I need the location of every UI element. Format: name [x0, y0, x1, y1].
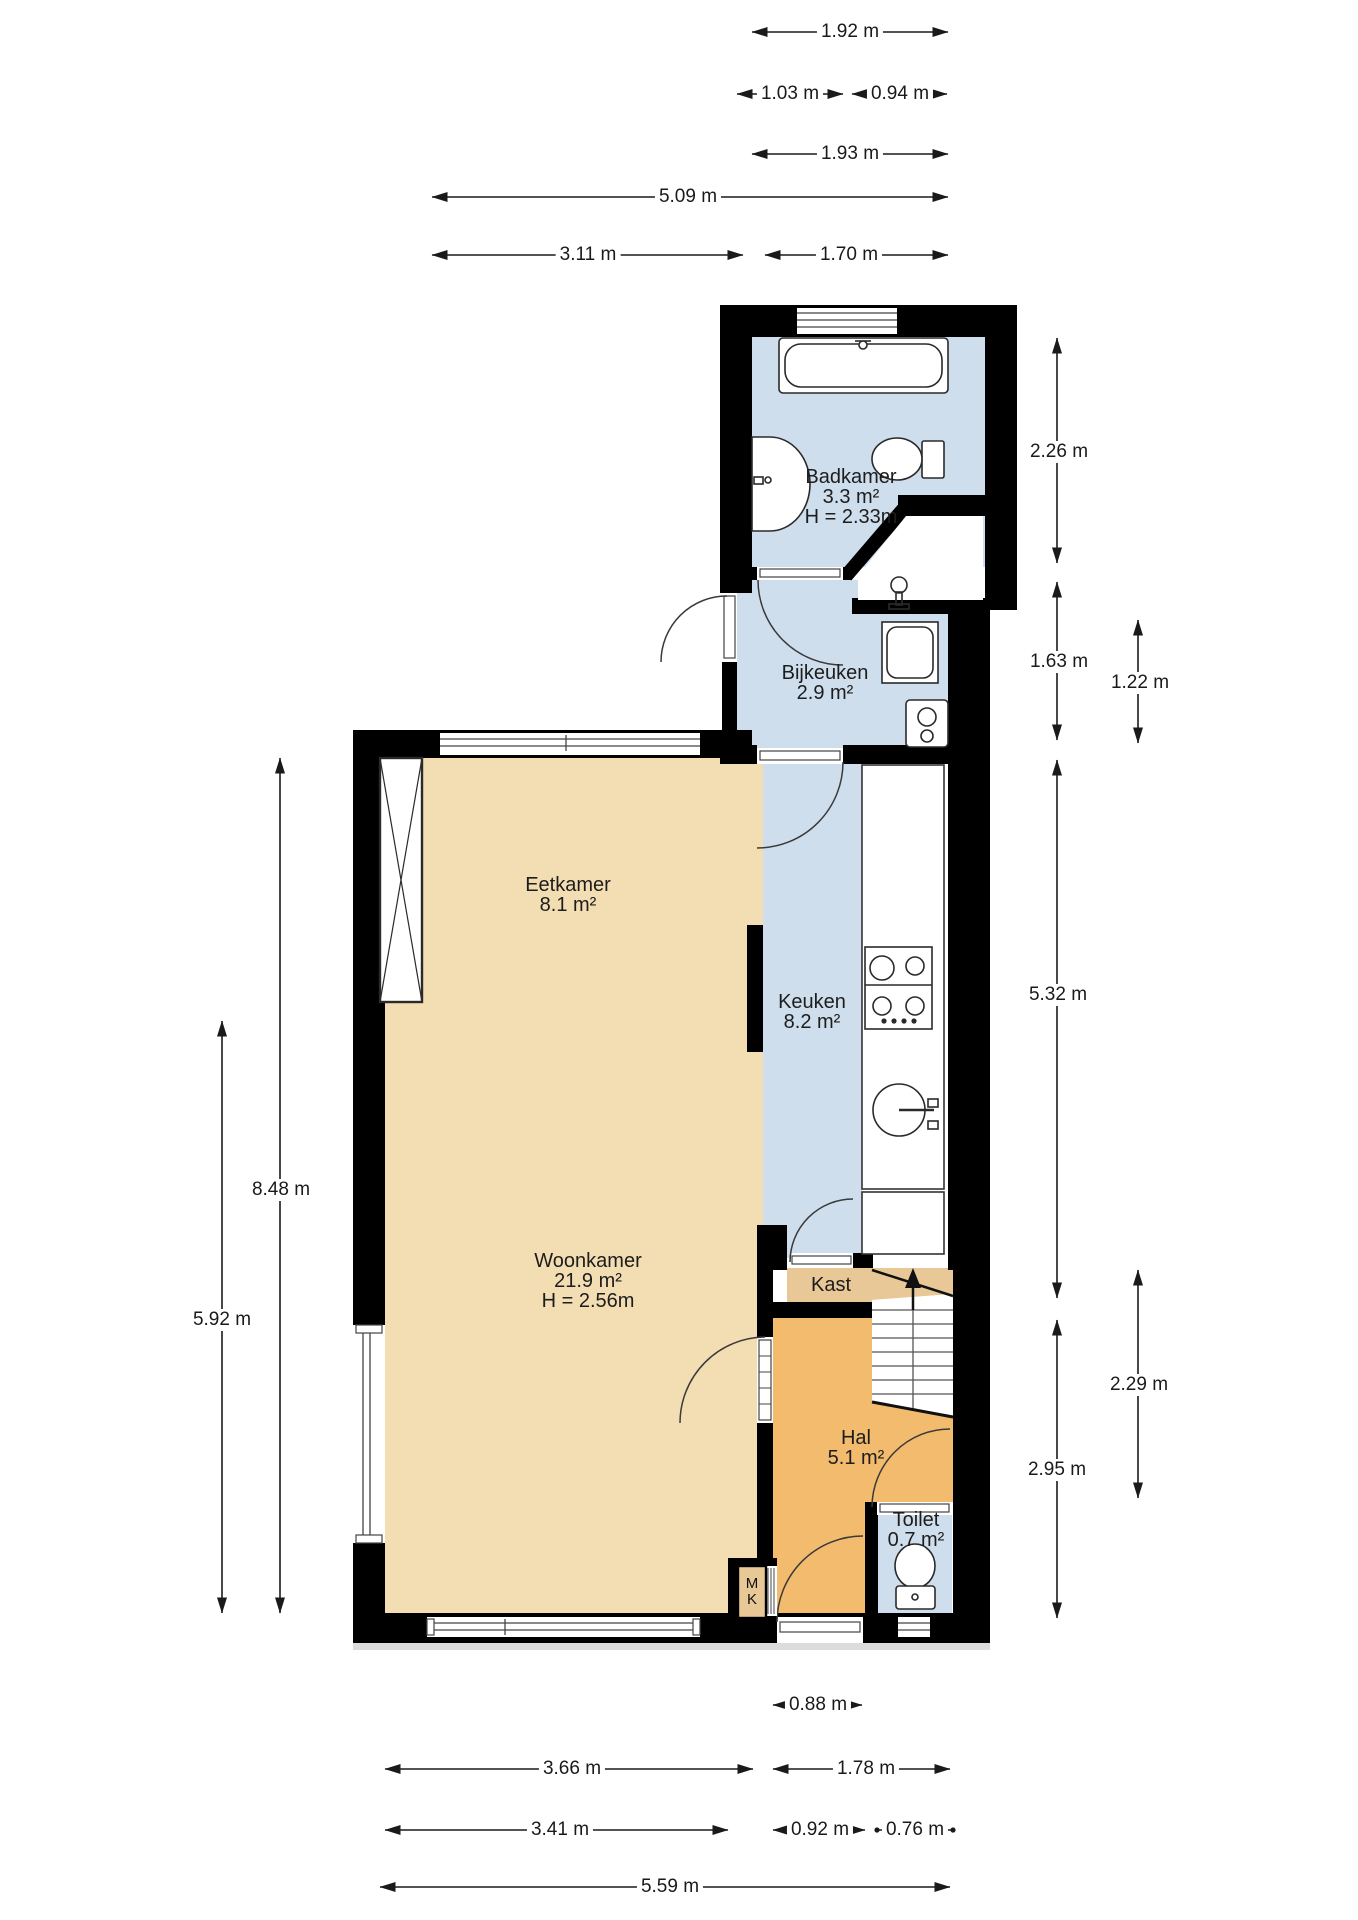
stove-icon: [865, 947, 932, 1029]
room-ceiling-height: H = 2.56m: [534, 1291, 641, 1311]
room-label-kast: Kast: [811, 1275, 851, 1295]
dimension-label-1-70: 1.70 m: [816, 244, 882, 266]
room-label-meterkast: M K: [746, 1576, 759, 1608]
meterkast-m: M: [746, 1576, 759, 1592]
room-name: Keuken: [778, 992, 846, 1012]
floorplan-drawing: [0, 0, 1358, 1920]
room-label-keuken: Keuken 8.2 m²: [778, 992, 846, 1032]
room-label-hal: Hal 5.1 m²: [828, 1428, 885, 1468]
dimension-label-1-03: 1.03 m: [757, 83, 823, 105]
room-name: Toilet: [888, 1510, 945, 1530]
room-hal-floor-lower: [773, 1502, 865, 1613]
room-label-eetkamer: Eetkamer 8.1 m²: [525, 875, 611, 915]
room-ceiling-height: H = 2.33m: [805, 507, 898, 527]
boiler-icon: [906, 700, 948, 747]
floorplan-page: 1.92 m 1.03 m 0.94 m 1.93 m 5.09 m 3.11 …: [0, 0, 1358, 1920]
door-arc-icon: [661, 596, 727, 662]
room-name: Hal: [828, 1428, 885, 1448]
toilet-icon: [895, 1544, 935, 1609]
washing-machine-icon: [882, 622, 938, 683]
window-icon: [353, 1325, 385, 1543]
dimension-label-0-76: 0.76 m: [882, 1819, 948, 1841]
dimension-label-1-22: 1.22 m: [1107, 672, 1173, 694]
dimension-label-5-32: 5.32 m: [1025, 984, 1091, 1006]
dimension-label-5-09: 5.09 m: [655, 186, 721, 208]
room-name: Kast: [811, 1275, 851, 1295]
dimension-label-3-11: 3.11 m: [556, 244, 621, 266]
dimension-label-2-26: 2.26 m: [1026, 441, 1092, 463]
dimension-label-0-88: 0.88 m: [785, 1694, 851, 1716]
room-area: 5.1 m²: [828, 1448, 885, 1468]
dimension-label-1-63: 1.63 m: [1026, 651, 1092, 673]
room-name: Woonkamer: [534, 1251, 641, 1271]
room-area: 2.9 m²: [782, 683, 869, 703]
window-icon: [797, 308, 897, 334]
room-label-bijkeuken: Bijkeuken 2.9 m²: [782, 663, 869, 703]
meterkast-k: K: [746, 1592, 759, 1608]
dimension-label-5-92: 5.92 m: [189, 1309, 255, 1331]
room-area: 0.7 m²: [888, 1530, 945, 1550]
dimension-label-1-78: 1.78 m: [833, 1758, 899, 1780]
dimension-label-1-92: 1.92 m: [817, 21, 883, 43]
window-icon: [440, 733, 700, 755]
facade-shadow: [353, 1643, 990, 1650]
room-name: Bijkeuken: [782, 663, 869, 683]
room-name: Eetkamer: [525, 875, 611, 895]
dimension-label-1-93: 1.93 m: [817, 143, 883, 165]
bathtub-icon: [779, 338, 948, 393]
dimension-label-0-92: 0.92 m: [787, 1819, 853, 1841]
room-area: 3.3 m²: [805, 487, 898, 507]
room-label-woonkamer: Woonkamer 21.9 m² H = 2.56m: [534, 1251, 641, 1311]
window-icon: [427, 1617, 700, 1637]
chimney-icon: [380, 758, 422, 1002]
dimension-label-5-59: 5.59 m: [637, 1876, 703, 1898]
dimension-label-2-95: 2.95 m: [1024, 1459, 1090, 1481]
room-name: Badkamer: [805, 467, 898, 487]
room-label-badkamer: Badkamer 3.3 m² H = 2.33m: [805, 467, 898, 527]
window-icon: [898, 1617, 930, 1637]
room-area: 8.1 m²: [525, 895, 611, 915]
dimension-label-3-41: 3.41 m: [527, 1819, 593, 1841]
room-area: 21.9 m²: [534, 1271, 641, 1291]
dimension-label-2-29: 2.29 m: [1106, 1374, 1172, 1396]
dimension-label-0-94: 0.94 m: [867, 83, 933, 105]
dimension-label-8-48: 8.48 m: [248, 1179, 314, 1201]
room-area: 8.2 m²: [778, 1012, 846, 1032]
dimension-label-3-66: 3.66 m: [539, 1758, 605, 1780]
room-label-toilet: Toilet 0.7 m²: [888, 1510, 945, 1550]
